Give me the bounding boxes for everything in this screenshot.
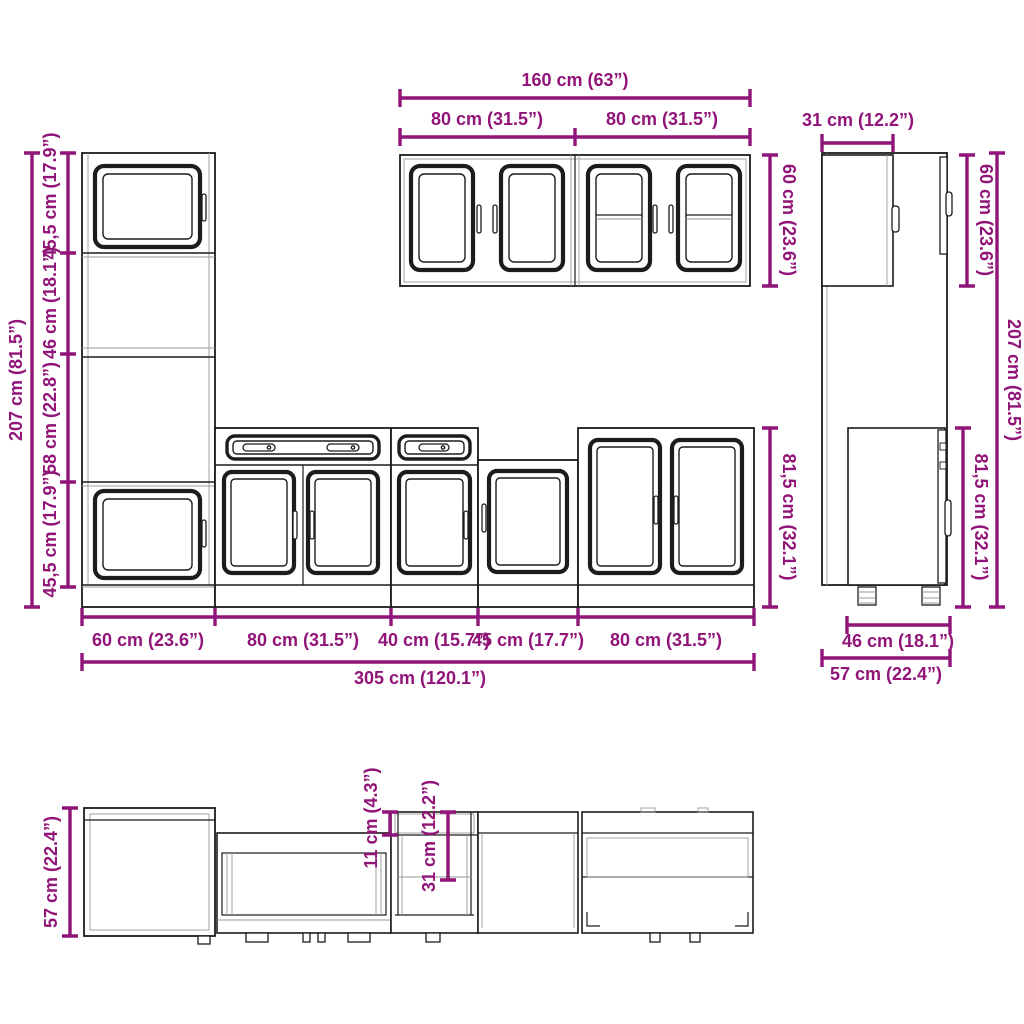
dim-label: 31 cm (12.2”) (419, 780, 439, 892)
dim-label: 60 cm (23.6”) (976, 164, 996, 276)
dim-wall-left-width: 80 cm (31.5”) 80 cm (31.5”) (400, 109, 750, 146)
dim-label: 45 cm (17.7”) (472, 630, 584, 650)
dim-label: 207 cm (81.5”) (6, 319, 26, 441)
base-cabinet-80-front (215, 428, 391, 607)
door-handle (653, 205, 657, 233)
door-handle-side (946, 192, 952, 216)
dim-label: 81,5 cm (32.1”) (971, 453, 991, 580)
dim-front-total-width: 305 cm (120.1”) (82, 653, 754, 688)
door-handle (477, 205, 481, 233)
dim-label: 80 cm (31.5”) (247, 630, 359, 650)
tall-cabinet-front (82, 153, 215, 607)
door-handle-side (945, 500, 951, 536)
sink-45-top (478, 812, 578, 933)
tall-cabinet-top (84, 808, 215, 944)
adjustable-foot (922, 587, 940, 605)
dim-side-wall-height: 60 cm (23.6”) (959, 155, 996, 286)
base-cabinet-80b-front (578, 428, 754, 607)
base-80b-top (582, 808, 753, 942)
wall-cabinet-side (822, 155, 893, 286)
dim-label: 57 cm (22.4”) (830, 664, 942, 684)
adjustable-foot (858, 587, 876, 605)
dim-side-wall-depth: 31 cm (12.2”) (802, 110, 914, 152)
dim-plan-depth: 57 cm (22.4”) (41, 808, 78, 936)
dim-side-base-depth: 46 cm (18.1”) (842, 616, 954, 651)
dim-label: 57 cm (22.4”) (41, 816, 61, 928)
dim-front-widths: 60 cm (23.6”) 80 cm (31.5”) 40 cm (15.7”… (82, 608, 754, 650)
dim-label: 60 cm (23.6”) (779, 164, 799, 276)
dim-side-base-height: 81,5 cm (32.1”) (955, 428, 991, 607)
door-handle-side (892, 206, 899, 232)
dim-label: 45,5 cm (17.9”) (40, 132, 60, 259)
dim-label: 45,5 cm (17.9”) (40, 470, 60, 597)
door-handle (310, 511, 314, 539)
dim-label: 31 cm (12.2”) (802, 110, 914, 130)
dim-wall-height: 60 cm (23.6”) (762, 155, 799, 286)
sink-cabinet-45-front (478, 460, 578, 607)
door-handle (654, 496, 658, 524)
door-handle (202, 194, 206, 221)
wall-cabinets-front (400, 155, 750, 286)
dim-label: 305 cm (120.1”) (354, 668, 486, 688)
door-handle (202, 520, 206, 547)
door-handle (669, 205, 673, 233)
dim-label: 160 cm (63”) (521, 70, 628, 90)
base-cabinet-40-front (391, 428, 478, 607)
dim-front-total-height: 207 cm (81.5”) (6, 153, 40, 607)
door-handle (482, 504, 486, 532)
dim-label: 11 cm (4.3”) (361, 767, 381, 868)
dim-label: 207 cm (81.5”) (1004, 319, 1024, 441)
door-handle (493, 205, 497, 233)
base-cabinet-side (848, 428, 945, 585)
door-handle (293, 511, 297, 539)
dim-label: 58 cm (22.8”) (40, 362, 60, 474)
door-handle (674, 496, 678, 524)
dim-label: 80 cm (31.5”) (606, 109, 718, 129)
dim-side-total-depth: 57 cm (22.4”) (822, 649, 950, 684)
dim-front-height-segments: 45,5 cm (17.9”) 46 cm (18.1”) 58 cm (22.… (40, 132, 76, 597)
dim-label: 81,5 cm (32.1”) (779, 453, 799, 580)
dim-label: 46 cm (18.1”) (40, 247, 60, 359)
dim-label: 60 cm (23.6”) (92, 630, 204, 650)
diagram-canvas: 160 cm (63”) 80 cm (31.5”) 80 cm (31.5”)… (0, 0, 1024, 1024)
dim-front-base-height: 81,5 cm (32.1”) (762, 428, 799, 607)
kitchen-dimension-diagram: 160 cm (63”) 80 cm (31.5”) 80 cm (31.5”)… (0, 0, 1024, 1024)
side-view (822, 153, 952, 605)
dim-label: 80 cm (31.5”) (431, 109, 543, 129)
dim-label: 80 cm (31.5”) (610, 630, 722, 650)
dim-wall-total-width: 160 cm (63”) (400, 70, 750, 107)
dim-label: 46 cm (18.1”) (842, 631, 954, 651)
door-handle (464, 511, 468, 539)
